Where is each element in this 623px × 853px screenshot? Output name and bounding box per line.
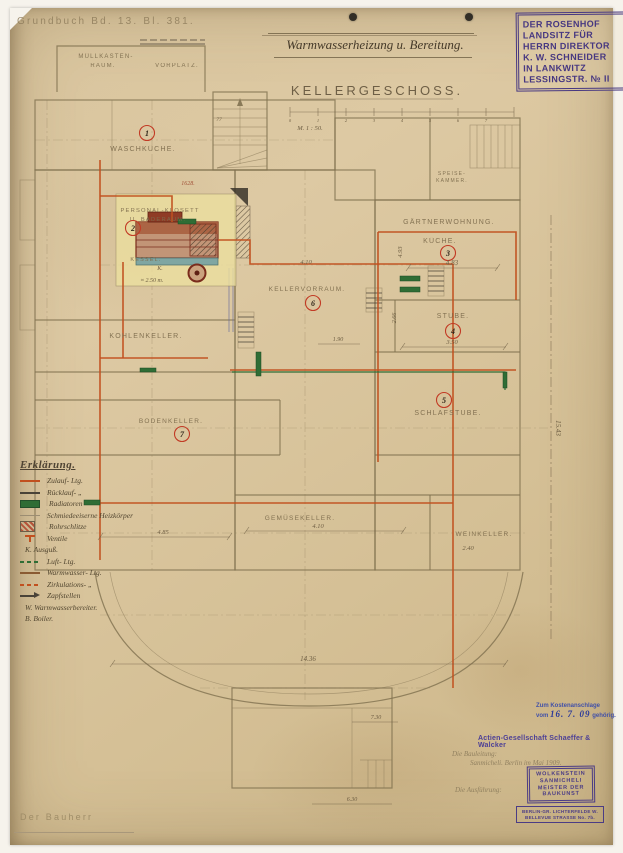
room-label-stube: Stube.: [437, 313, 469, 320]
address-stamp: BERLIN-GR. LICHTERFELDE W. BELLEVUE STRA…: [516, 806, 604, 823]
legend-label: Ventile: [47, 534, 67, 543]
dim-stube-h: 2.66: [392, 313, 398, 324]
scale-note: M. 1 : 50.: [296, 125, 323, 132]
legend-swatch-iron-heater: [20, 511, 42, 520]
dim-stube-w: 3.50: [445, 339, 458, 346]
owner-stamp-line: LESSINGSTR. № II: [523, 73, 621, 85]
legend-title: Erklärung.: [20, 459, 172, 471]
dim-terrace: 14.36: [300, 655, 316, 663]
legend-swatch-radiator: [20, 500, 40, 508]
dim-gemuese: 4.10: [312, 523, 324, 530]
legend-item: W. Warmwasserbereiter.: [20, 602, 172, 614]
scale-tick: 1: [317, 118, 319, 123]
boiler-label: Kessel.: [130, 257, 161, 263]
dim-vorraum-small: 1.90: [333, 337, 344, 343]
legend-label: K. Ausguß.: [25, 545, 58, 554]
legend-swatch-supply-line: [20, 476, 42, 485]
legend-label: Luft- Ltg.: [47, 557, 75, 566]
cost-estimate-prefix: vom: [536, 713, 548, 719]
room-label-vorplatz: Vorplatz.: [155, 63, 199, 69]
legend-swatch-none: [20, 545, 22, 554]
room-label-muellkasten-2: Raum.: [90, 63, 115, 69]
legend-label: Zapfstellen: [47, 591, 80, 600]
legend-item: Warmwasser- Ltg.: [20, 567, 172, 579]
address-stamp-line1: BERLIN-GR. LICHTERFELDE W.: [518, 809, 602, 815]
legend-label: Schmiedeeiserne Heizkörper: [47, 511, 133, 520]
owner-stamp: DER ROSENHOF LANDSITZ FÜR HERRN DIREKTOR…: [516, 11, 623, 91]
room-label-kellervorraum: Kellervorraum.: [269, 286, 346, 293]
room-label-gemuesekeller: Gemüsekeller.: [265, 514, 336, 522]
room-label-gaertnerwohnung: Gärtnerwohnung.: [403, 218, 495, 226]
room-label-bodenkeller: Bodenkeller.: [139, 418, 203, 425]
staircase-right: [470, 125, 520, 168]
room-number-4: 4: [450, 327, 455, 336]
bauherr-label: Der Bauherr: [20, 812, 93, 822]
legend-item: Zapfstellen: [20, 590, 172, 602]
room-label-waschkueche: Waschküche.: [110, 145, 175, 153]
legend-item: Ventile: [20, 533, 172, 545]
punch-hole: [349, 13, 357, 21]
legend-swatch-valve: [20, 534, 42, 543]
scale-tick: 6: [457, 118, 460, 123]
legend-swatch-return-line: [20, 488, 42, 497]
room-label-kohlenkeller: Kohlenkeller.: [109, 333, 182, 340]
dim-stair: 77: [216, 117, 222, 123]
staircase-top: [213, 98, 267, 168]
legend-swatch-tap-arrow: [20, 591, 42, 600]
legend-label: B. Boiler.: [25, 614, 53, 623]
legend-label: W. Warmwasserbereiter.: [25, 603, 97, 612]
legend-swatch-circulation-line: [20, 580, 42, 589]
legend-swatch-pipe-chase: [20, 521, 35, 532]
scale-tick: 3: [373, 118, 376, 123]
scale-tick: 2: [345, 118, 348, 123]
sheet-title-wrap: Warmwasserheizung u. Bereitung.: [276, 36, 474, 54]
legend-swatch-none: [20, 603, 22, 612]
room-label-kueche: Küche.: [423, 237, 457, 245]
legend-item: Schmiedeeiserne Heizkörper: [20, 510, 172, 522]
room-label-muellkasten: Müllkasten-: [78, 53, 133, 60]
punch-hole: [465, 13, 473, 21]
legend-item: Zirkulations- „: [20, 579, 172, 591]
legend-item: K. Ausguß.: [20, 544, 172, 556]
legend-label: Zirkulations- „: [47, 580, 92, 589]
room-number-6: 6: [311, 299, 315, 308]
legend-swatch-hot-water-line: [20, 568, 42, 577]
legend-item: Luft- Ltg.: [20, 556, 172, 568]
legend-label: Warmwasser- Ltg.: [47, 568, 102, 577]
room-label-schlafstube: Schlafstube.: [414, 410, 481, 417]
cost-estimate-stamp: Zum Kostenanschlage vom 16. 7. 09 gehöri…: [536, 703, 618, 720]
architect-stamp-line: BAUKUNST: [532, 791, 590, 799]
legend-label: Rücklauf- „: [47, 488, 82, 497]
cost-estimate-line2: vom 16. 7. 09 gehörig.: [536, 711, 618, 721]
scale-tick: 7: [485, 118, 488, 123]
owner-stamp-line: K. W. SCHNEIDER: [523, 51, 621, 63]
boiler-mark: K.: [156, 266, 163, 272]
handwritten-note-3: Die Ausführung:: [455, 786, 502, 794]
legend-label: Zulauf- Ltg.: [47, 476, 83, 485]
scale-tick: 5: [429, 118, 432, 123]
address-stamp-line2: BELLEVUE STRASSE No. 7b.: [518, 815, 602, 821]
legend-item: Rohrschlitze: [20, 521, 172, 533]
legend-item: Rücklauf- „: [20, 487, 172, 499]
architect-stamp: WOLKENSTEIN SANMICHELI MEISTER DER BAUKU…: [527, 766, 596, 804]
room-label-baderaum: Personal-Klosett: [120, 208, 199, 214]
legend-swatch-air-line: [20, 557, 42, 566]
room-label-speisekammer-2: Kammer.: [436, 178, 468, 184]
room-number-1: 1: [145, 129, 149, 138]
company-stamp: Actien-Gesellschaft Schaeffer & Walcker: [478, 735, 620, 749]
building-walls: [20, 46, 523, 788]
scanned-plan-sheet: Kellergeschoss. 0 1 2 3 4 5 6 7 M. 1 : 5…: [0, 0, 623, 853]
legend-item: Radiatoren: [20, 498, 172, 510]
scale-tick: 0: [289, 118, 292, 123]
legend-item: B. Boiler.: [20, 613, 172, 625]
handwritten-note-1: Die Bauleitung:: [452, 750, 497, 758]
room-number-5: 5: [442, 396, 446, 405]
room-label-weinkeller: Weinkeller.: [456, 531, 513, 538]
scale-tick: 4: [401, 118, 404, 123]
room-number-3: 3: [445, 249, 450, 258]
sheet-title: Warmwasserheizung u. Bereitung.: [286, 37, 463, 52]
legend-label: Radiatoren: [49, 499, 82, 508]
title-rule-top: [268, 33, 474, 34]
title-rule-bottom: [274, 57, 472, 58]
legend-label: Rohrschlitze: [49, 522, 87, 531]
grundbuch-note: Grundbuch Bd. 13. Bl. 381.: [17, 16, 195, 27]
room-label-speisekammer: Speise-: [438, 171, 466, 177]
dim-annex: 7.30: [371, 715, 382, 721]
dim-right-total: 15.43: [554, 420, 562, 436]
dim-wein: 2.40: [462, 545, 474, 552]
legend-swatch-none: [20, 614, 22, 623]
cost-estimate-date: 16. 7. 09: [550, 709, 591, 719]
dim-kueche-h: 4.93: [397, 246, 404, 258]
dim-vorraum: 4.10: [300, 259, 312, 266]
room-number-2: 2: [130, 224, 135, 233]
bauherr-signature-line: [14, 832, 134, 833]
legend: Erklärung. Zulauf- Ltg. Rücklauf- „ Radi…: [20, 459, 172, 625]
floor-plan-drawing: Kellergeschoss. 0 1 2 3 4 5 6 7 M. 1 : 5…: [0, 0, 623, 853]
legend-item: Zulauf- Ltg.: [20, 475, 172, 487]
plan-heading: Kellergeschoss.: [291, 83, 463, 98]
dim-kueche-w: 4.83: [446, 259, 459, 267]
cost-estimate-suffix: gehörig.: [592, 713, 616, 719]
dim-annex2: 6.30: [347, 797, 358, 803]
boiler-width-note: ≈ 2.50 m.: [141, 278, 164, 284]
room-number-7: 7: [180, 430, 185, 439]
plot-number: 1628.: [181, 181, 195, 187]
